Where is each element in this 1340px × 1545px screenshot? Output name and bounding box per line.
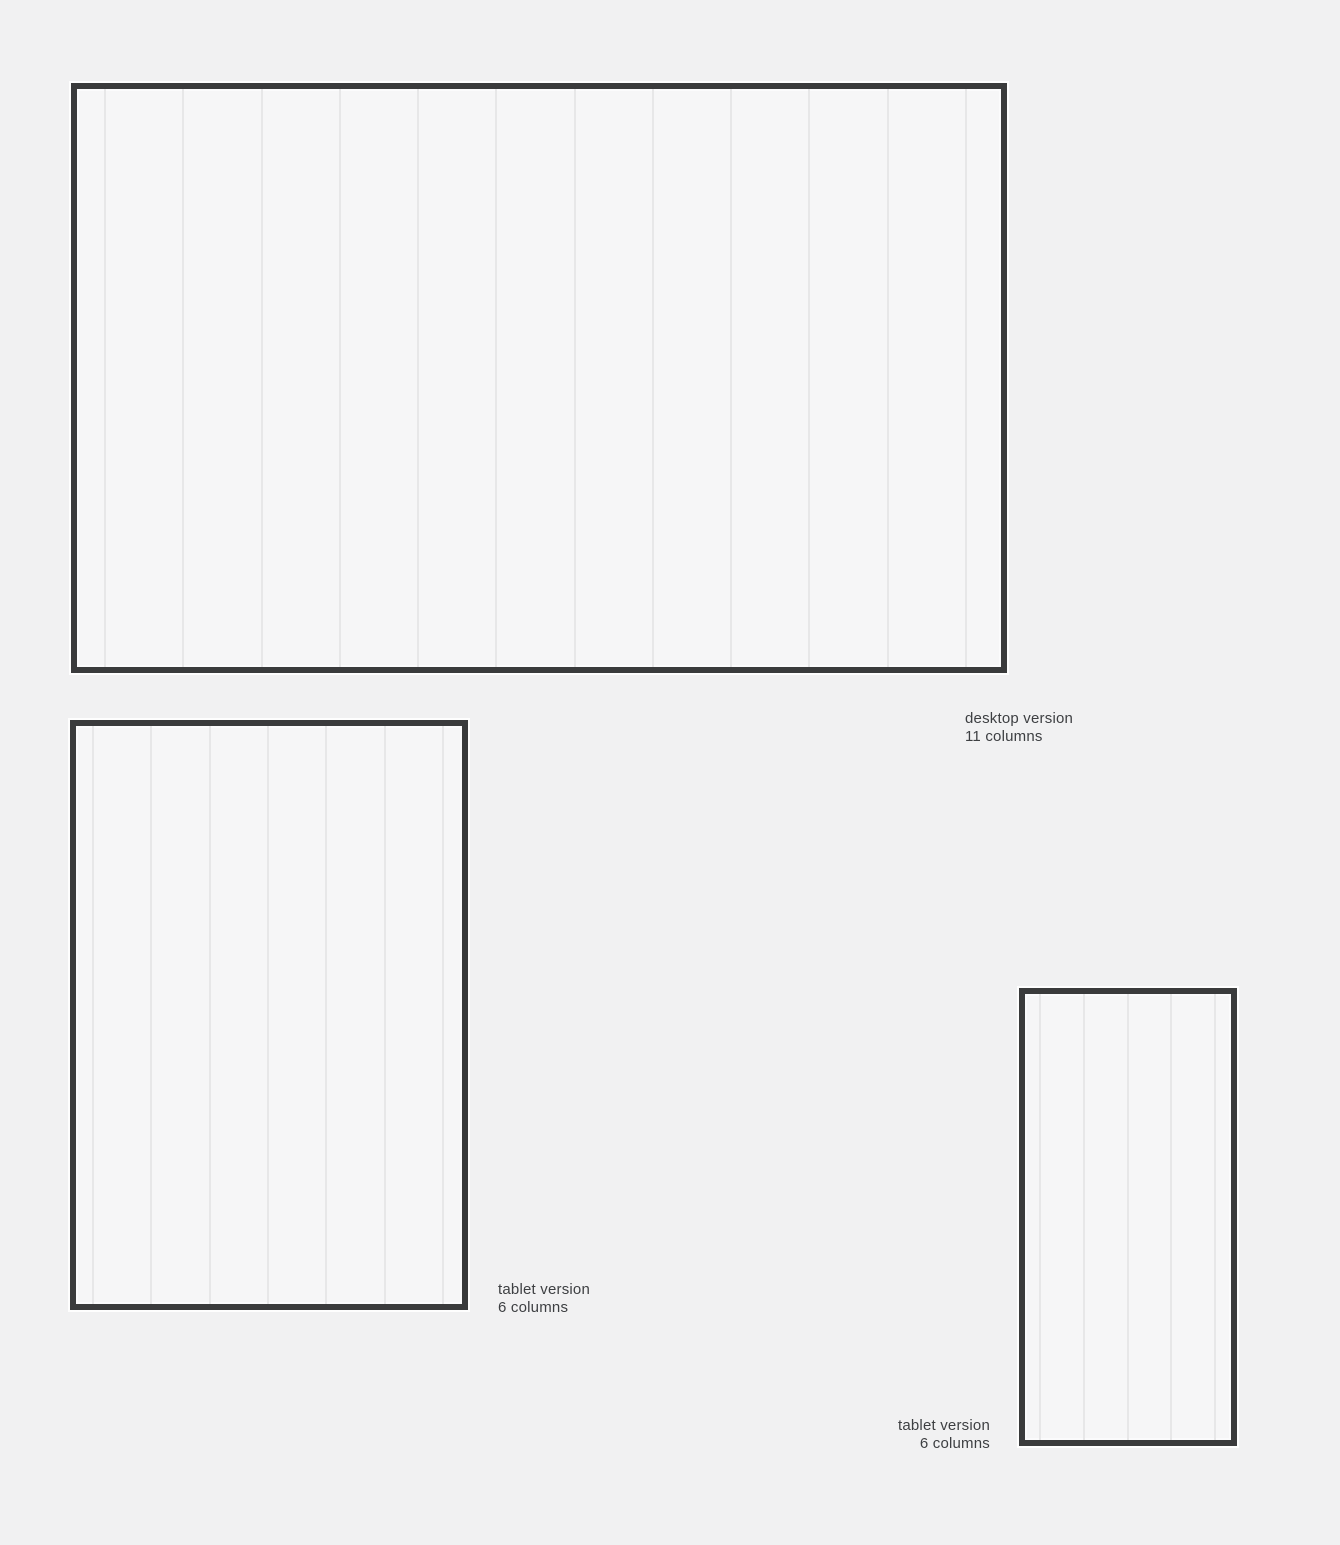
grid-column xyxy=(261,89,339,667)
grid-column xyxy=(417,89,495,667)
grid-column xyxy=(209,726,267,1304)
grid-margin-left xyxy=(1025,994,1039,1440)
grid-column xyxy=(1127,994,1171,1440)
grid-column xyxy=(182,89,260,667)
grid-margin-left xyxy=(76,726,92,1304)
grid-column xyxy=(384,726,442,1304)
tablet-small-version-label: tablet version 6 columns xyxy=(898,1417,990,1453)
grid-margin-right xyxy=(965,89,1001,667)
tablet-small-grid-frame xyxy=(1019,988,1237,1446)
grid-margin-right xyxy=(442,726,462,1304)
grid-column xyxy=(808,89,886,667)
grid-column xyxy=(325,726,383,1304)
grid-margin-left xyxy=(77,89,104,667)
tablet-large-version-label: tablet version 6 columns xyxy=(498,1281,590,1317)
desktop-version-label: desktop version 11 columns xyxy=(965,710,1073,746)
tablet-large-version-label-line1: tablet version xyxy=(498,1281,590,1299)
grid-column xyxy=(495,89,573,667)
desktop-version-label-line1: desktop version xyxy=(965,710,1073,728)
grid-column xyxy=(104,89,182,667)
grid-column xyxy=(267,726,325,1304)
artboard: desktop version 11 columns tablet versio… xyxy=(0,0,1340,1545)
grid-column xyxy=(339,89,417,667)
grid-column xyxy=(1170,994,1214,1440)
grid-column xyxy=(730,89,808,667)
desktop-version-label-line2: 11 columns xyxy=(965,728,1073,746)
grid-column xyxy=(150,726,208,1304)
grid-column xyxy=(887,89,965,667)
grid-margin-right xyxy=(1214,994,1231,1440)
desktop-grid-frame xyxy=(71,83,1007,673)
grid-column xyxy=(1083,994,1127,1440)
tablet-large-grid-frame xyxy=(70,720,468,1310)
tablet-large-version-label-line2: 6 columns xyxy=(498,1299,590,1317)
tablet-small-version-label-line1: tablet version xyxy=(898,1417,990,1435)
grid-column xyxy=(574,89,652,667)
grid-column xyxy=(652,89,730,667)
tablet-small-version-label-line2: 6 columns xyxy=(898,1435,990,1453)
grid-column xyxy=(92,726,150,1304)
grid-column xyxy=(1039,994,1083,1440)
